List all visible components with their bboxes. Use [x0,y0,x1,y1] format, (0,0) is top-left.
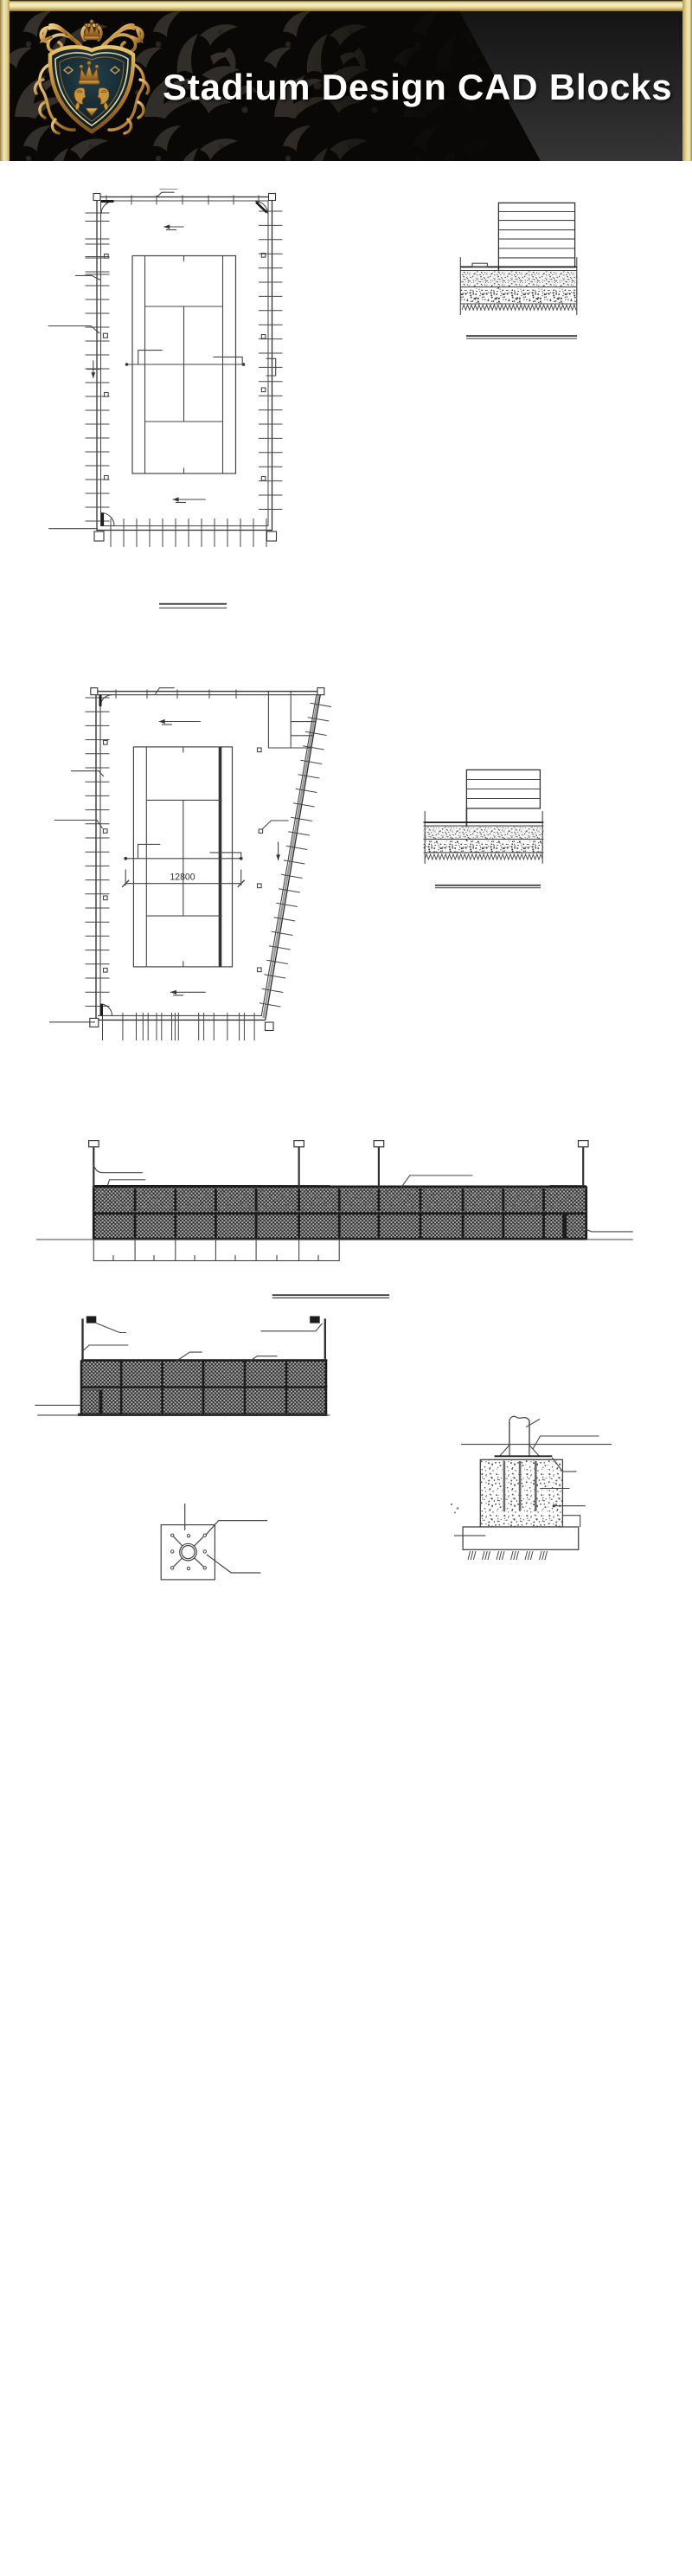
svg-text:12800: 12800 [170,873,195,883]
